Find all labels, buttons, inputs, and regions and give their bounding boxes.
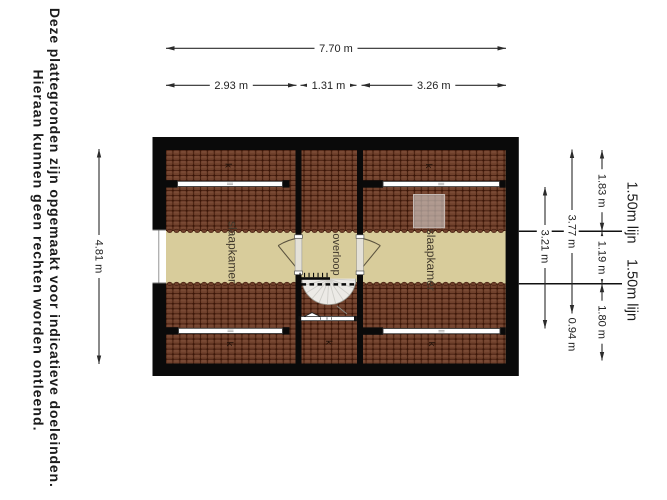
svg-text:1.50m lijn: 1.50m lijn	[624, 259, 640, 321]
svg-text:1.31 m: 1.31 m	[312, 80, 346, 92]
svg-text:k: k	[323, 340, 334, 345]
svg-text:4.81 m: 4.81 m	[92, 240, 104, 274]
svg-text:slaapkamer: slaapkamer	[225, 221, 239, 283]
svg-text:0.94 m: 0.94 m	[565, 318, 577, 352]
svg-text:k: k	[224, 342, 235, 347]
svg-text:3.77 m: 3.77 m	[565, 215, 577, 249]
svg-text:7.70 m: 7.70 m	[319, 43, 353, 55]
svg-text:overloop: overloop	[330, 233, 342, 275]
svg-text:2.93 m: 2.93 m	[214, 80, 248, 92]
svg-text:Deze plattegronden zijn opgema: Deze plattegronden zijn opgemaakt voor i…	[47, 8, 63, 488]
svg-text:1.83 m: 1.83 m	[595, 174, 607, 208]
svg-text:k: k	[423, 164, 434, 169]
svg-text:slaapkamer: slaapkamer	[424, 229, 438, 291]
svg-text:1.80 m: 1.80 m	[595, 305, 607, 339]
svg-text:1.50m lijn: 1.50m lijn	[624, 181, 640, 243]
svg-text:k: k	[223, 163, 234, 168]
svg-text:Hieraan kunnen geen rechten wo: Hieraan kunnen geen rechten worden ontle…	[31, 69, 47, 431]
svg-text:3.21 m: 3.21 m	[538, 230, 550, 264]
svg-text:k: k	[426, 342, 437, 347]
svg-text:3.26 m: 3.26 m	[417, 80, 451, 92]
svg-text:1.19 m: 1.19 m	[595, 241, 607, 275]
